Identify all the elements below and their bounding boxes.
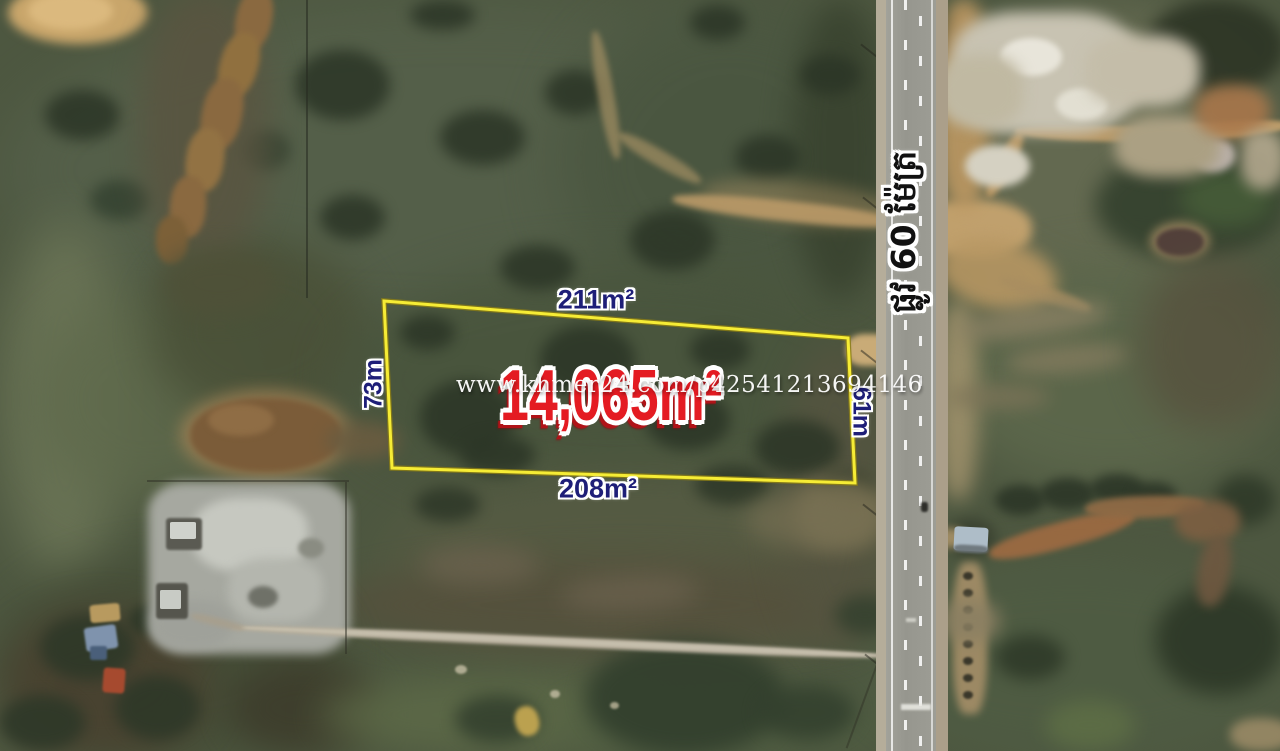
pit — [298, 538, 324, 558]
road-marking — [901, 704, 931, 710]
terrain-patch — [1175, 500, 1240, 542]
terrain-patch — [295, 50, 390, 120]
terrain-patch — [745, 492, 875, 548]
excavation-patch — [1085, 35, 1200, 107]
marsh — [160, 248, 280, 318]
bottom-side-length-label: 208m² — [559, 474, 637, 505]
terrain-patch — [0, 695, 85, 750]
terrain-patch — [690, 5, 745, 40]
terrain-patch — [460, 435, 535, 475]
terrain-patch — [760, 685, 855, 740]
pond — [1156, 228, 1204, 256]
terrain-patch — [610, 702, 619, 709]
terrain-patch — [45, 90, 120, 140]
terrain-patch — [415, 487, 480, 522]
terrain-patch — [500, 245, 575, 290]
terrain-patch — [410, 0, 475, 30]
excavation-patch — [1240, 130, 1280, 190]
road-edge-line-right — [931, 0, 933, 751]
pond — [208, 404, 274, 436]
pond — [325, 422, 400, 460]
top-side-length-label: 211m² — [558, 285, 635, 316]
pit — [248, 586, 278, 608]
terrain-patch — [630, 210, 715, 270]
pit — [963, 674, 973, 682]
pit — [963, 589, 973, 597]
pit — [963, 572, 973, 580]
terrain-patch — [550, 690, 560, 698]
road-marking — [906, 618, 916, 622]
terrain-patch — [790, 0, 890, 300]
terrain-patch — [585, 640, 785, 751]
terrain-patch — [945, 385, 1050, 409]
satellite-map: 211m² 208m² 73m 61m 14,065m² ផ្លូវ 60 ម៉… — [0, 0, 1280, 751]
pit — [963, 691, 973, 699]
shed-roof — [170, 522, 196, 539]
terrain-patch — [800, 55, 860, 95]
excavation-patch — [938, 55, 1023, 127]
vehicle — [921, 502, 928, 512]
terrain-patch — [995, 635, 1065, 680]
watermark-text: www.khmer24.com/p42541213694146 — [456, 372, 923, 398]
terrain-patch — [90, 180, 150, 220]
terrain-patch — [1045, 700, 1135, 750]
terrain-patch — [755, 420, 840, 475]
terrain-patch — [455, 665, 467, 674]
terrain-patch — [400, 315, 455, 350]
terrain-patch — [320, 195, 385, 240]
fence-line — [306, 0, 308, 298]
left-side-length-label: 73m — [360, 359, 389, 409]
terrain-patch — [1140, 260, 1280, 430]
terrain-patch — [420, 545, 540, 585]
fence-line — [345, 482, 347, 654]
terrain-patch — [735, 135, 800, 180]
terrain-patch — [1230, 718, 1280, 751]
terrain-patch — [695, 465, 770, 505]
shed-roof — [160, 590, 181, 609]
excavation-patch — [965, 145, 1030, 187]
terrain-patch — [440, 110, 525, 165]
road-shoulder-right — [936, 0, 948, 751]
fence-line — [147, 480, 349, 482]
road-name-label: ផ្លូវ 60 ម៉ែត្រ — [884, 151, 932, 314]
pit — [963, 657, 973, 665]
house-roof — [102, 667, 126, 693]
terrain-patch — [995, 485, 1045, 515]
house-roof — [89, 603, 120, 624]
house-roof — [90, 646, 107, 660]
terrain-patch — [115, 675, 200, 740]
